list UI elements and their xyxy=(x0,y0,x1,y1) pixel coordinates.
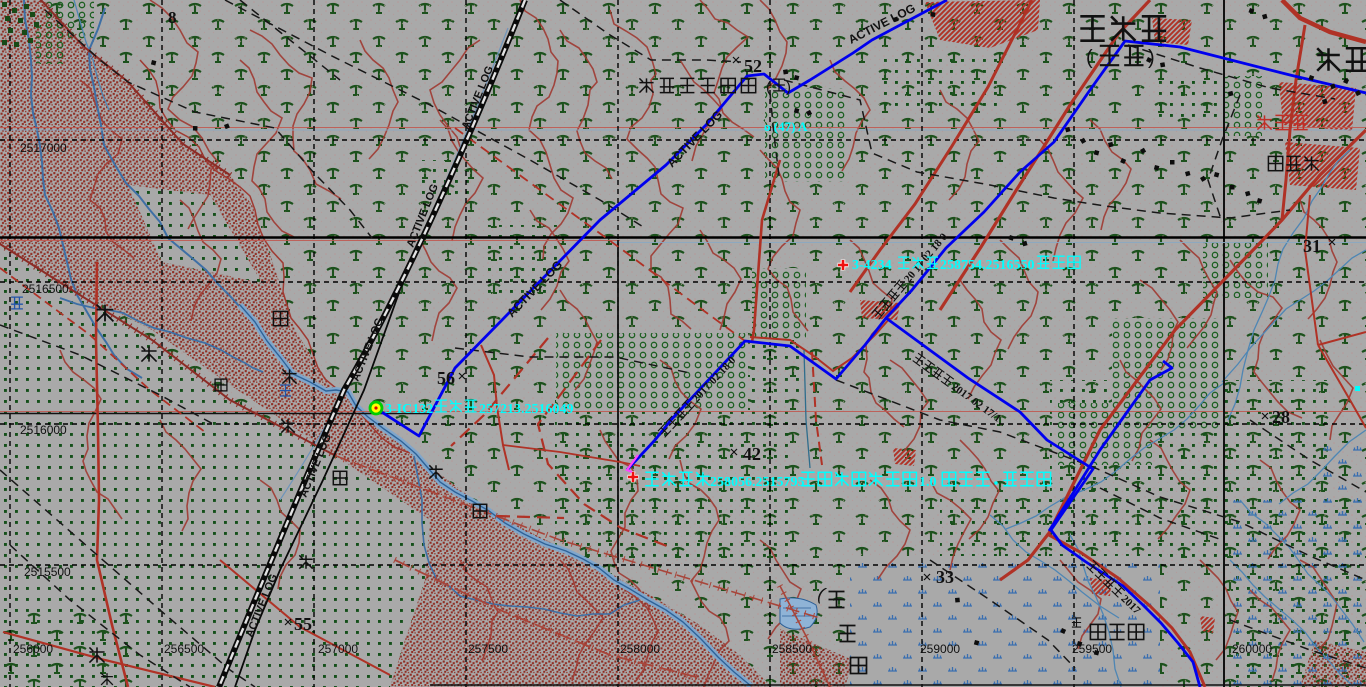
svg-text:257213.2516049: 257213.2516049 xyxy=(479,402,574,417)
svg-text:1.0: 1.0 xyxy=(919,475,937,490)
svg-text:56: 56 xyxy=(437,368,455,388)
svg-text:2515500: 2515500 xyxy=(24,565,71,579)
svg-text:33: 33 xyxy=(936,567,954,587)
svg-text:52: 52 xyxy=(744,56,762,76)
svg-text:55: 55 xyxy=(294,614,312,634)
svg-text:3-IC132: 3-IC132 xyxy=(385,402,433,417)
svg-text:258000: 258000 xyxy=(620,642,660,656)
svg-text:8: 8 xyxy=(168,8,177,27)
svg-text:2516500: 2516500 xyxy=(22,282,69,296)
svg-text:31: 31 xyxy=(1303,236,1321,256)
svg-text:259000: 259000 xyxy=(920,642,960,656)
svg-text:): ) xyxy=(786,79,791,96)
svg-text:2517000: 2517000 xyxy=(20,141,67,155)
svg-text:258500: 258500 xyxy=(772,642,812,656)
svg-text:o (47) A: o (47) A xyxy=(764,119,808,134)
svg-text:(: ( xyxy=(766,79,771,96)
svg-text:257500: 257500 xyxy=(468,642,508,656)
svg-text:258056.2515795: 258056.2515795 xyxy=(710,475,805,490)
svg-text:257000: 257000 xyxy=(318,642,358,656)
svg-text:260000: 260000 xyxy=(1232,642,1272,656)
svg-text:28: 28 xyxy=(1272,407,1290,427)
svg-text:258754.2516550: 258754.2516550 xyxy=(940,258,1035,273)
svg-text:(: ( xyxy=(1086,47,1093,69)
svg-text:256000: 256000 xyxy=(13,642,53,656)
svg-text:2516000: 2516000 xyxy=(20,423,67,437)
svg-text:3-4234: 3-4234 xyxy=(852,258,892,273)
svg-text:42: 42 xyxy=(743,444,761,464)
svg-text:256500: 256500 xyxy=(164,642,204,656)
